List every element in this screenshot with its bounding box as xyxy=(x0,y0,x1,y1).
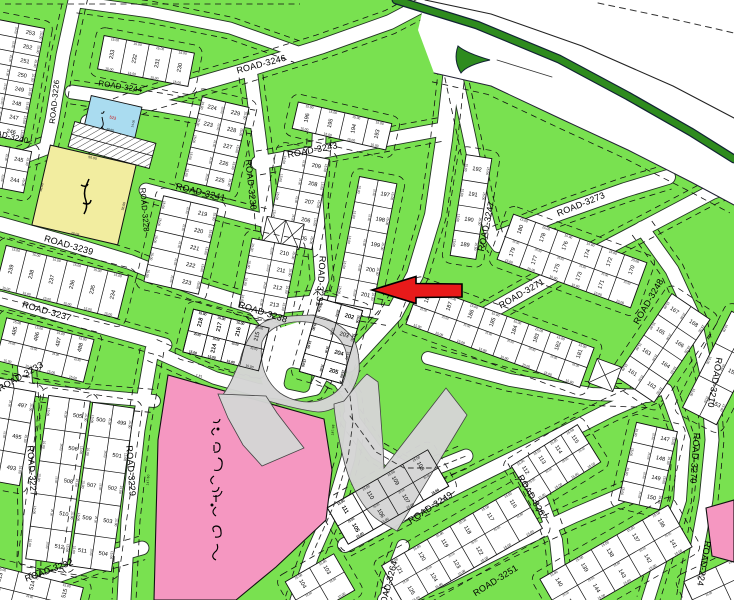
svg-text:25.00: 25.00 xyxy=(0,111,2,119)
svg-text:511: 511 xyxy=(78,548,88,555)
svg-text:25.00: 25.00 xyxy=(0,462,1,470)
